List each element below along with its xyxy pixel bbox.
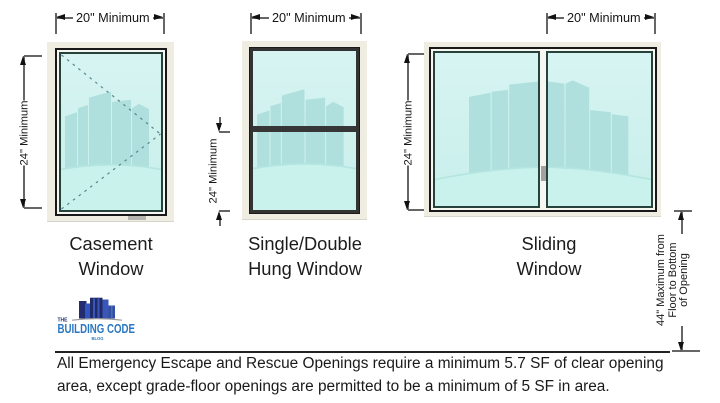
svg-text:BUILDING CODE: BUILDING CODE [58, 321, 136, 336]
svg-text:BLOG: BLOG [92, 336, 104, 341]
